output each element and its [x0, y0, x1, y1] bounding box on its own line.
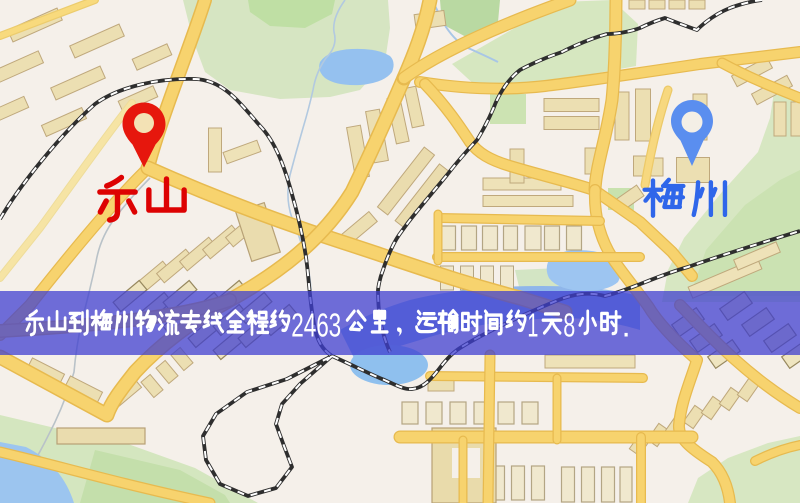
- svg-text:2463: 2463: [291, 307, 341, 344]
- svg-text:.: .: [622, 307, 631, 344]
- svg-text:8: 8: [563, 307, 575, 344]
- svg-text:1: 1: [527, 307, 538, 344]
